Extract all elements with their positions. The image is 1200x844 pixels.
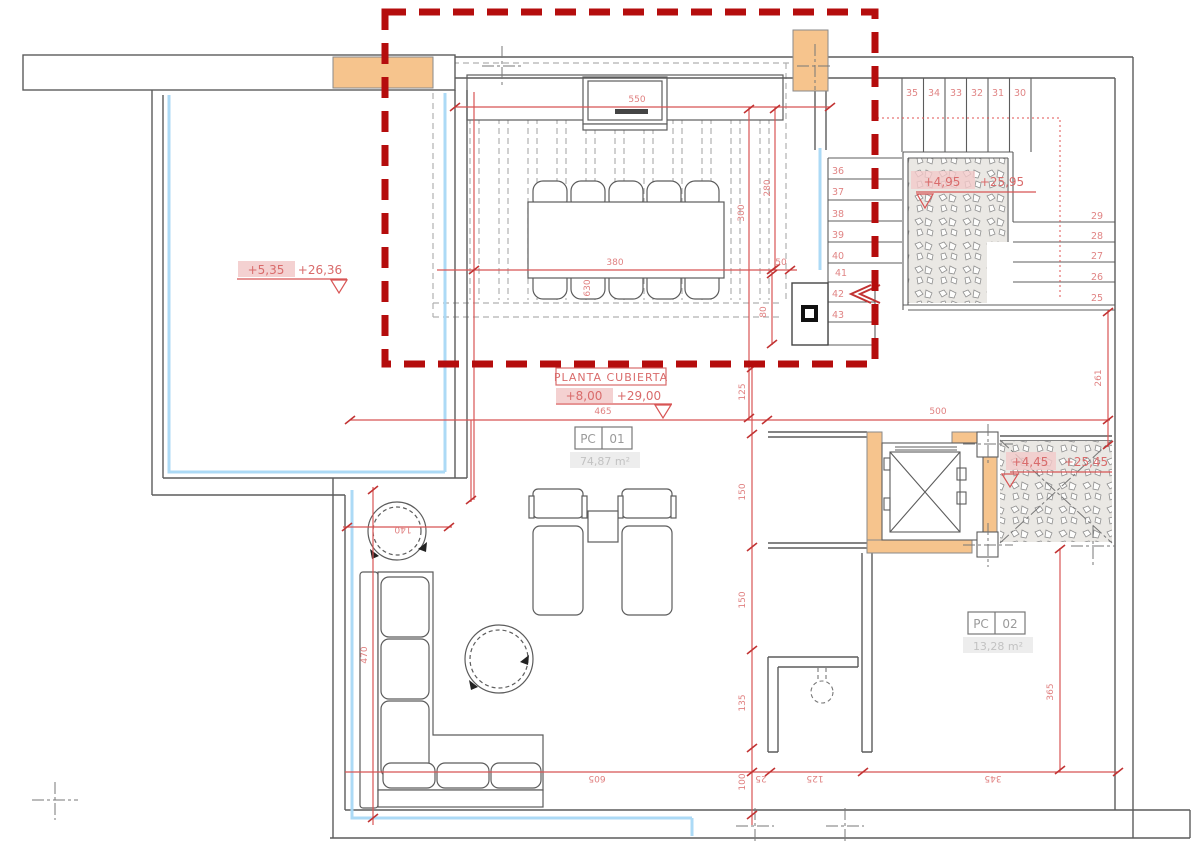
room-area: 74,87 m² [580, 455, 630, 468]
level-lift-alt: +25,45 [1064, 455, 1108, 469]
dim-380: 380 [606, 258, 623, 268]
dim-365: 365 [1046, 683, 1056, 700]
room-number: 02 [1002, 617, 1017, 631]
step-label: 37 [832, 187, 844, 198]
level-stair-alt: +25,95 [980, 175, 1024, 189]
orange-column-top [793, 30, 828, 91]
dim-80: 80 [759, 306, 769, 318]
step-label: 41 [835, 268, 847, 279]
level-roof-main: +8,00 [566, 389, 603, 403]
sofa-base [378, 790, 543, 807]
level-terrace-alt: +26,36 [298, 263, 342, 277]
room-code: PC [973, 617, 989, 631]
bbq-handle [615, 109, 648, 114]
pillar [792, 283, 828, 345]
level-terrace-main: +5,35 [248, 263, 285, 277]
title-box: PLANTA CUBIERTA +8,00 +29,00 [554, 368, 671, 418]
dim-125b: 125 [806, 773, 823, 783]
dim-125: 125 [738, 383, 748, 400]
dim-465: 465 [594, 407, 611, 417]
lounge-furniture [360, 489, 676, 808]
dim-150b: 150 [738, 591, 748, 608]
step-label: 36 [832, 166, 844, 177]
dim-135: 135 [738, 694, 748, 711]
hatched-landings [908, 158, 1112, 542]
dim-630: 630 [583, 279, 593, 296]
step-label: 42 [832, 289, 844, 300]
round-table-large [465, 625, 533, 693]
step-label: 28 [1091, 231, 1103, 242]
step-label: 29 [1091, 211, 1103, 222]
step-label: 40 [832, 251, 844, 262]
plan-title: PLANTA CUBIERTA [554, 371, 668, 384]
level-stair-main: +4,95 [924, 175, 961, 189]
room-tag-pc01[interactable]: PC 01 74,87 m² [570, 427, 640, 468]
dim-470: 470 [360, 646, 370, 663]
lift-wall-top [952, 432, 977, 443]
step-label: 25 [1091, 293, 1103, 304]
dining-table [528, 202, 724, 278]
step-label: 26 [1091, 272, 1103, 283]
side-table [588, 511, 618, 542]
floor-plan-canvas: 35 34 33 32 31 30 36 37 38 39 40 41 42 4… [0, 0, 1200, 844]
room-number: 01 [609, 432, 624, 446]
step-label: 31 [992, 88, 1004, 99]
step-label: 38 [832, 209, 844, 220]
step-label: 39 [832, 230, 844, 241]
dim-261: 261 [1094, 369, 1104, 386]
dim-140: 140 [394, 524, 411, 534]
elevator [882, 432, 998, 557]
step-label: 32 [971, 88, 983, 99]
lift-wall-left [867, 432, 882, 553]
step-label: 43 [832, 310, 844, 321]
dim-345: 345 [984, 773, 1001, 783]
room-code: PC [580, 432, 596, 446]
step-label: 30 [1014, 88, 1026, 99]
dim-280: 280 [763, 179, 773, 196]
lift-wall-bottom [867, 540, 972, 553]
dim-50: 50 [775, 258, 787, 268]
dim-550: 550 [628, 95, 645, 105]
level-lift-main: +4,45 [1012, 455, 1049, 469]
level-marker-terrace: +5,35 +26,36 [238, 261, 347, 293]
dim-605: 605 [588, 773, 605, 783]
room-area: 13,28 m² [973, 640, 1023, 653]
level-roof-alt: +29,00 [617, 389, 661, 403]
room-tag-pc02[interactable]: PC 02 13,28 m² [963, 612, 1033, 653]
shower-drain [811, 668, 833, 703]
dim-150a: 150 [738, 483, 748, 500]
dim-300: 300 [737, 204, 747, 221]
dim-100: 100 [738, 773, 748, 790]
sun-lounger-left [529, 489, 587, 615]
lift-wall-right [983, 457, 997, 533]
dim-25: 25 [755, 773, 766, 783]
step-label: 35 [906, 88, 918, 99]
elevator-cross [890, 452, 960, 532]
step-label: 33 [950, 88, 962, 99]
sun-lounger-right [618, 489, 676, 615]
dining-set [528, 181, 724, 299]
step-label: 27 [1091, 251, 1103, 262]
dim-500: 500 [929, 407, 946, 417]
step-label: 34 [928, 88, 940, 99]
outdoor-counter [467, 75, 783, 130]
